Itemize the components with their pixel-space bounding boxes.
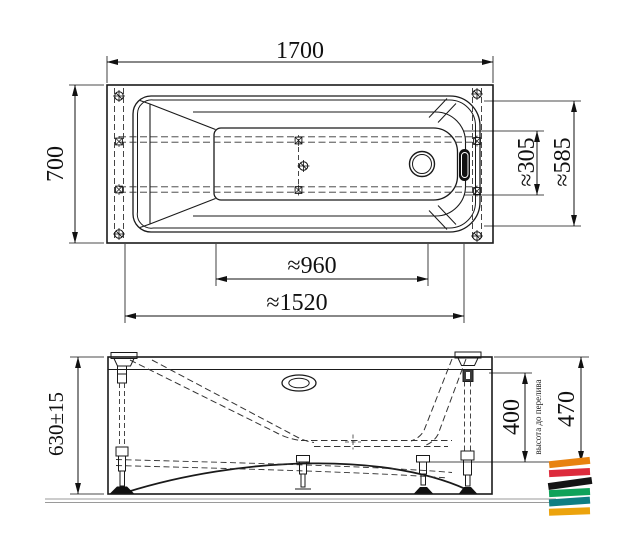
logo-stripe-green <box>549 488 590 497</box>
hidden-footwall-lines <box>411 359 466 446</box>
leg-back-middle <box>414 456 433 494</box>
label-overflow-height: 400 <box>499 372 525 462</box>
label-drain-overflow-span: ≈585 <box>550 117 576 207</box>
frame-rail-lines <box>119 137 477 192</box>
label-overflow-height-note: высота до перелива <box>532 357 544 477</box>
waste-cover <box>282 375 316 391</box>
drain-hole <box>410 152 435 177</box>
label-overflow-offset: ≈305 <box>514 117 540 207</box>
logo-stripe-amber <box>549 507 590 515</box>
floor-line <box>45 499 556 503</box>
side-view <box>45 352 556 503</box>
overflow-handle <box>459 149 470 181</box>
label-inner-depth: 470 <box>554 364 580 454</box>
brand-logo-stripes <box>548 457 593 516</box>
leg-middle <box>295 456 311 490</box>
hidden-backrest-lines <box>130 360 452 447</box>
hidden-center-mark <box>345 435 361 450</box>
logo-stripe-orange <box>549 457 591 468</box>
backrest-lines <box>140 101 216 228</box>
leg-back-right <box>455 352 481 494</box>
leg-front-left <box>110 353 137 494</box>
label-side-height: 630±15 <box>43 379 69 469</box>
label-top-width: 700 <box>43 119 69 209</box>
bathtub-technical-drawing: 1700 700 ≈305 ≈585 ≈960 ≈1520 630±15 400… <box>0 0 633 534</box>
logo-stripe-teal <box>549 497 590 507</box>
label-inner-bottom-length: ≈960 <box>267 253 357 279</box>
frame-column-left <box>115 88 124 240</box>
dim-top-width <box>69 85 104 243</box>
logo-stripe-black <box>548 477 593 490</box>
tub-bottom <box>214 128 458 200</box>
label-top-length: 1700 <box>255 38 345 64</box>
corner-blend-lines <box>429 99 456 230</box>
tub-rim-outer <box>133 96 480 232</box>
logo-stripe-red <box>549 468 590 477</box>
hidden-bottom-lines <box>116 460 452 479</box>
label-outer-bottom-length: ≈1520 <box>252 290 342 316</box>
top-view <box>107 85 493 243</box>
dim-side-height <box>70 357 104 494</box>
